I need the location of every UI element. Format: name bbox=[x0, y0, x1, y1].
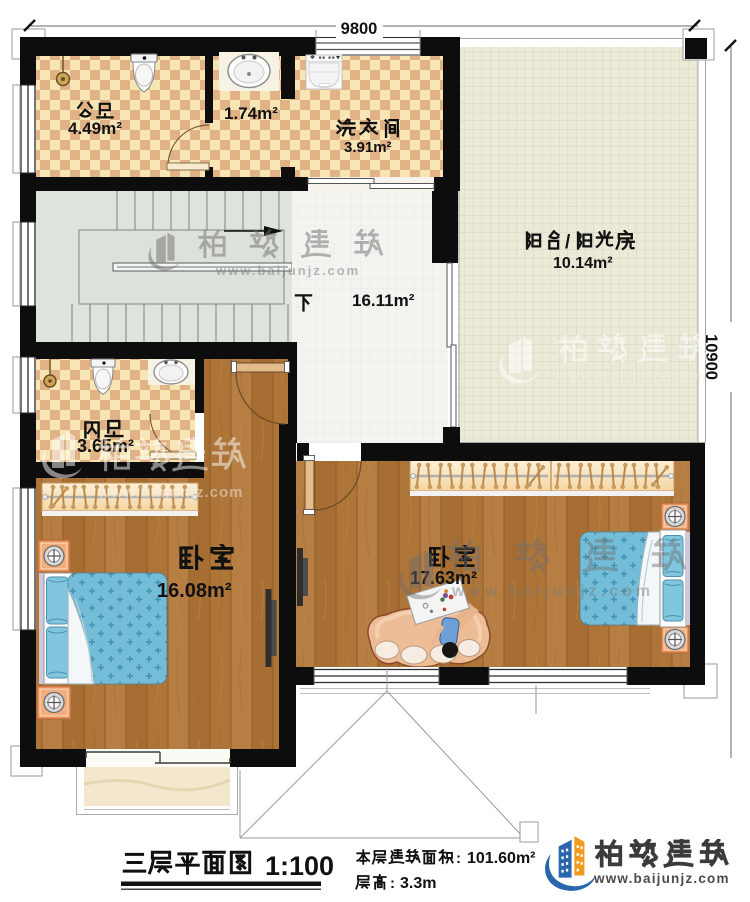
svg-text:101.60m²: 101.60m² bbox=[467, 850, 536, 867]
svg-text:www.baijunjz.com: www.baijunjz.com bbox=[556, 369, 709, 383]
svg-text:/: / bbox=[565, 232, 571, 253]
svg-text:16.08m²: 16.08m² bbox=[157, 580, 232, 602]
svg-text:16.11m²: 16.11m² bbox=[352, 291, 415, 310]
svg-text:10.14m²: 10.14m² bbox=[553, 255, 613, 272]
svg-text::: : bbox=[456, 850, 461, 867]
svg-text:3.3m: 3.3m bbox=[400, 875, 436, 892]
svg-text:www.baijunjz.com: www.baijunjz.com bbox=[593, 871, 730, 886]
svg-text:www.baijunjz.com: www.baijunjz.com bbox=[97, 484, 243, 501]
svg-text:4.49m²: 4.49m² bbox=[68, 119, 122, 138]
svg-text:1.74m²: 1.74m² bbox=[224, 104, 278, 123]
svg-text:3.91m²: 3.91m² bbox=[344, 139, 392, 156]
svg-text:www.baijunjz.com: www.baijunjz.com bbox=[215, 263, 360, 278]
svg-text:1:100: 1:100 bbox=[265, 851, 334, 881]
svg-text:9800: 9800 bbox=[341, 20, 378, 38]
svg-text::: : bbox=[390, 875, 395, 892]
svg-text:www.baijunjz.com: www.baijunjz.com bbox=[451, 583, 654, 600]
